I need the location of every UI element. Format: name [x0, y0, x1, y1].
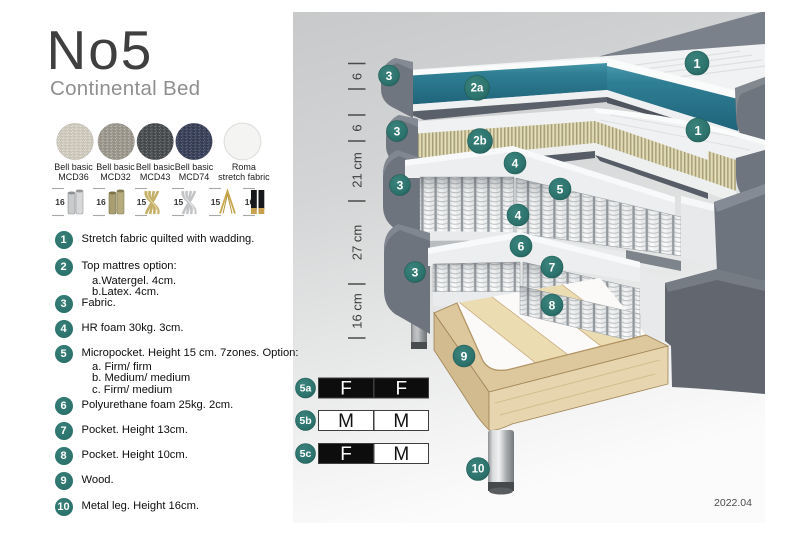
- svg-text:1: 1: [693, 56, 700, 71]
- svg-text:16 cm: 16 cm: [350, 293, 365, 328]
- svg-text:M: M: [393, 411, 409, 432]
- svg-text:27 cm: 27 cm: [350, 225, 365, 260]
- svg-text:1: 1: [694, 123, 701, 138]
- svg-text:8: 8: [549, 299, 556, 313]
- svg-text:16: 16: [96, 197, 106, 207]
- svg-text:5: 5: [557, 183, 564, 197]
- svg-text:3: 3: [386, 69, 393, 83]
- svg-text:21 cm: 21 cm: [350, 152, 365, 187]
- svg-text:6: 6: [518, 240, 525, 254]
- svg-text:F: F: [395, 379, 407, 400]
- svg-text:F: F: [340, 444, 352, 465]
- svg-text:M: M: [338, 411, 354, 432]
- svg-text:M: M: [393, 444, 409, 465]
- svg-text:5a: 5a: [300, 383, 312, 395]
- svg-text:6: 6: [350, 124, 365, 131]
- svg-text:2022.04: 2022.04: [714, 497, 752, 509]
- svg-text:F: F: [340, 379, 352, 400]
- svg-text:5b: 5b: [299, 415, 311, 427]
- svg-text:2a: 2a: [471, 83, 484, 95]
- svg-text:10: 10: [472, 464, 485, 476]
- svg-text:16: 16: [55, 197, 65, 207]
- svg-text:3: 3: [412, 266, 419, 280]
- svg-text:3: 3: [394, 125, 401, 139]
- svg-text:2b: 2b: [473, 136, 486, 148]
- svg-text:15: 15: [174, 197, 184, 207]
- svg-text:3: 3: [397, 179, 404, 193]
- svg-text:15: 15: [137, 197, 147, 207]
- svg-text:6: 6: [350, 73, 365, 80]
- svg-text:7: 7: [549, 261, 556, 275]
- svg-text:5c: 5c: [300, 448, 312, 460]
- svg-text:4: 4: [515, 209, 522, 223]
- svg-text:15: 15: [211, 197, 221, 207]
- svg-text:9: 9: [461, 350, 468, 364]
- svg-text:4: 4: [512, 157, 519, 171]
